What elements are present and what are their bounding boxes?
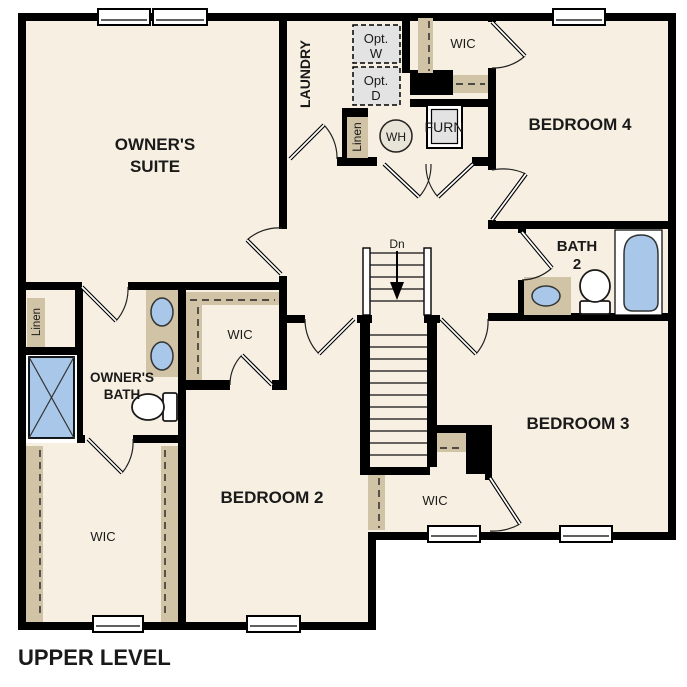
wic-top-label: WIC [450,36,475,51]
window [247,616,300,632]
wic-owners-label: WIC [90,529,115,544]
opt-washer-label-line1: Opt. [364,31,389,46]
window [428,526,480,542]
bedroom4-label: BEDROOM 4 [529,115,633,134]
wic-bedroom3-shelf-side [368,475,385,530]
wic-bedroom2-shelf [186,292,279,305]
bedroom2-label: BEDROOM 2 [221,488,324,507]
window [553,9,605,25]
linen-laundry-label: Linen [350,122,364,151]
sink [151,298,173,326]
stair-rail-left [363,248,370,315]
opt-washer-label-line2: W [370,46,383,61]
bedroom3-label: BEDROOM 3 [527,414,630,433]
owners-bath-label-line2: BATH [104,387,141,402]
wic-bedroom3-label: WIC [422,493,447,508]
owners-bath-label-line1: OWNER'S [90,370,154,385]
bathtub [615,230,662,315]
laundry-label: LAUNDRY [297,39,313,108]
bath2-label-line1: BATH [557,238,598,255]
wic-top-shelf-side [418,18,433,73]
shower [26,355,77,443]
opt-dryer-label-line1: Opt. [364,73,389,88]
floor-plan-drawing: OWNER'S SUITE BEDROOM 4 BEDROOM 3 BEDROO… [0,0,687,687]
wic-bedroom2-shelf-side [186,305,202,380]
furnace-label: FURN [425,119,464,135]
linen-owners-label: Linen [31,308,43,336]
window [98,9,150,25]
stairs-down-label: Dn [389,237,404,251]
wic-bedroom2-label: WIC [227,327,252,342]
wic-bedroom3-shelf-top [437,433,466,452]
wic-owners-shelf-right [161,446,178,622]
opt-dryer-label-line2: D [371,88,380,103]
sink [532,286,560,306]
sink [151,342,173,370]
bath2-label-line2: 2 [573,256,581,273]
window [93,616,143,632]
owners-suite-label-line1: OWNER'S [115,135,196,154]
window [560,526,612,542]
stair-rail-right [424,248,431,315]
window [153,9,207,25]
owners-suite-label-line2: SUITE [130,157,180,176]
page-title: UPPER LEVEL [18,645,171,670]
toilet [580,270,610,314]
floor-plan-page: OWNER'S SUITE BEDROOM 4 BEDROOM 3 BEDROO… [0,0,687,687]
water-heater-label: WH [386,130,406,144]
